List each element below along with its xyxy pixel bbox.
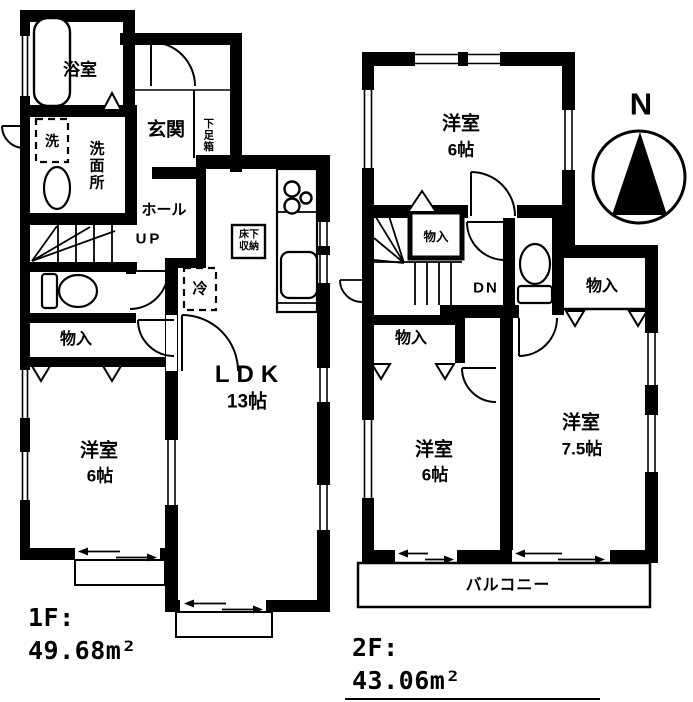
terrace-step-1f-b	[176, 612, 272, 637]
washbasin-icon	[44, 167, 70, 209]
label-bedroom-2f-se: 洋室	[562, 414, 600, 433]
area-label-1f: 1F: 49.68m²	[28, 602, 137, 667]
door-bedroom-sw	[462, 368, 496, 402]
toilet-tank-1f	[42, 274, 57, 308]
storage-fold-mark-1f	[103, 366, 121, 381]
label-bedroom-1f-size: 6帖	[87, 468, 113, 485]
compass-icon	[593, 131, 685, 223]
label-bedroom-2f-sw: 洋室	[415, 441, 453, 460]
label-floor-storage-line2: 収納	[239, 241, 259, 253]
door-toilet-1f	[130, 271, 168, 309]
floor-plan-page: 浴室 洗 洗面所 玄関 下足箱 ホール UP 物入 洋室 6帖 LDK 13帖 …	[0, 0, 693, 702]
stove-burner-icon	[301, 193, 312, 204]
door-bedroom-se	[519, 318, 557, 356]
label-fridge: 冷	[192, 282, 207, 297]
stove-burner-icon	[285, 199, 300, 214]
label-floor-storage: 床下 収納	[239, 230, 259, 253]
storage-fold-mark-2f	[566, 311, 584, 326]
label-floor-storage-line1: 床下	[239, 230, 259, 242]
label-storage-west: 物入	[395, 331, 427, 347]
area-label-2f-size: 43.06m²	[352, 665, 461, 698]
label-entrance: 玄関	[147, 121, 185, 140]
storage-fold-mark-2f	[372, 364, 390, 379]
door-entrance	[151, 42, 195, 86]
walls-2f	[362, 52, 658, 563]
label-bedroom-2f-se-size: 7.5帖	[562, 441, 603, 458]
area-label-1f-size: 49.68m²	[28, 635, 137, 668]
compass-north-label: N	[630, 89, 652, 120]
floor-plan-drawing	[0, 0, 693, 702]
label-storage-stairs: 物入	[423, 231, 448, 244]
door-toilet-2f	[467, 222, 505, 260]
area-label-2f-floor: 2F:	[352, 632, 461, 665]
door-exterior-left-2f	[340, 280, 362, 302]
toilet-tank-2f	[518, 286, 552, 303]
label-bedroom-2f-north: 洋室	[442, 115, 480, 134]
label-ldk-size: 13帖	[227, 393, 267, 412]
label-down: DN	[473, 281, 499, 296]
label-hall: ホール	[141, 203, 186, 218]
label-bedroom-2f-sw-size: 6帖	[422, 467, 448, 484]
sink-icon	[281, 252, 317, 298]
label-bedroom-2f-north-size: 6帖	[448, 142, 474, 159]
label-bedroom-1f: 洋室	[80, 442, 118, 461]
door-bedroom-north	[471, 172, 515, 216]
storage-fold-mark-2f	[436, 364, 454, 379]
label-up: UP	[136, 232, 163, 247]
stairs-1f	[32, 225, 115, 262]
toilet-bowl-1f	[59, 275, 97, 307]
label-storage-east: 物入	[586, 279, 618, 295]
area-label-1f-floor: 1F:	[28, 602, 137, 635]
area-label-2f: 2F: 43.06m²	[352, 632, 461, 697]
label-storage-1f: 物入	[60, 332, 92, 348]
label-bath: 浴室	[63, 62, 97, 79]
bath-door-mark	[103, 93, 121, 110]
label-ldk: LDK	[215, 363, 285, 387]
label-washroom: 洗面所	[89, 141, 104, 192]
storage-fold-mark-2f	[629, 311, 647, 326]
terrace-step-1f-a	[75, 560, 165, 585]
stove-burner-icon	[285, 182, 300, 197]
storage-door-mark-2f	[408, 191, 436, 212]
storage-fold-mark-1f	[32, 366, 50, 381]
toilet-bowl-2f	[520, 244, 550, 284]
label-balcony: バルコニー	[466, 578, 551, 594]
label-washer: 洗	[45, 134, 59, 148]
compass-needle	[612, 132, 667, 215]
label-shoe-box: 下足箱	[203, 118, 214, 153]
